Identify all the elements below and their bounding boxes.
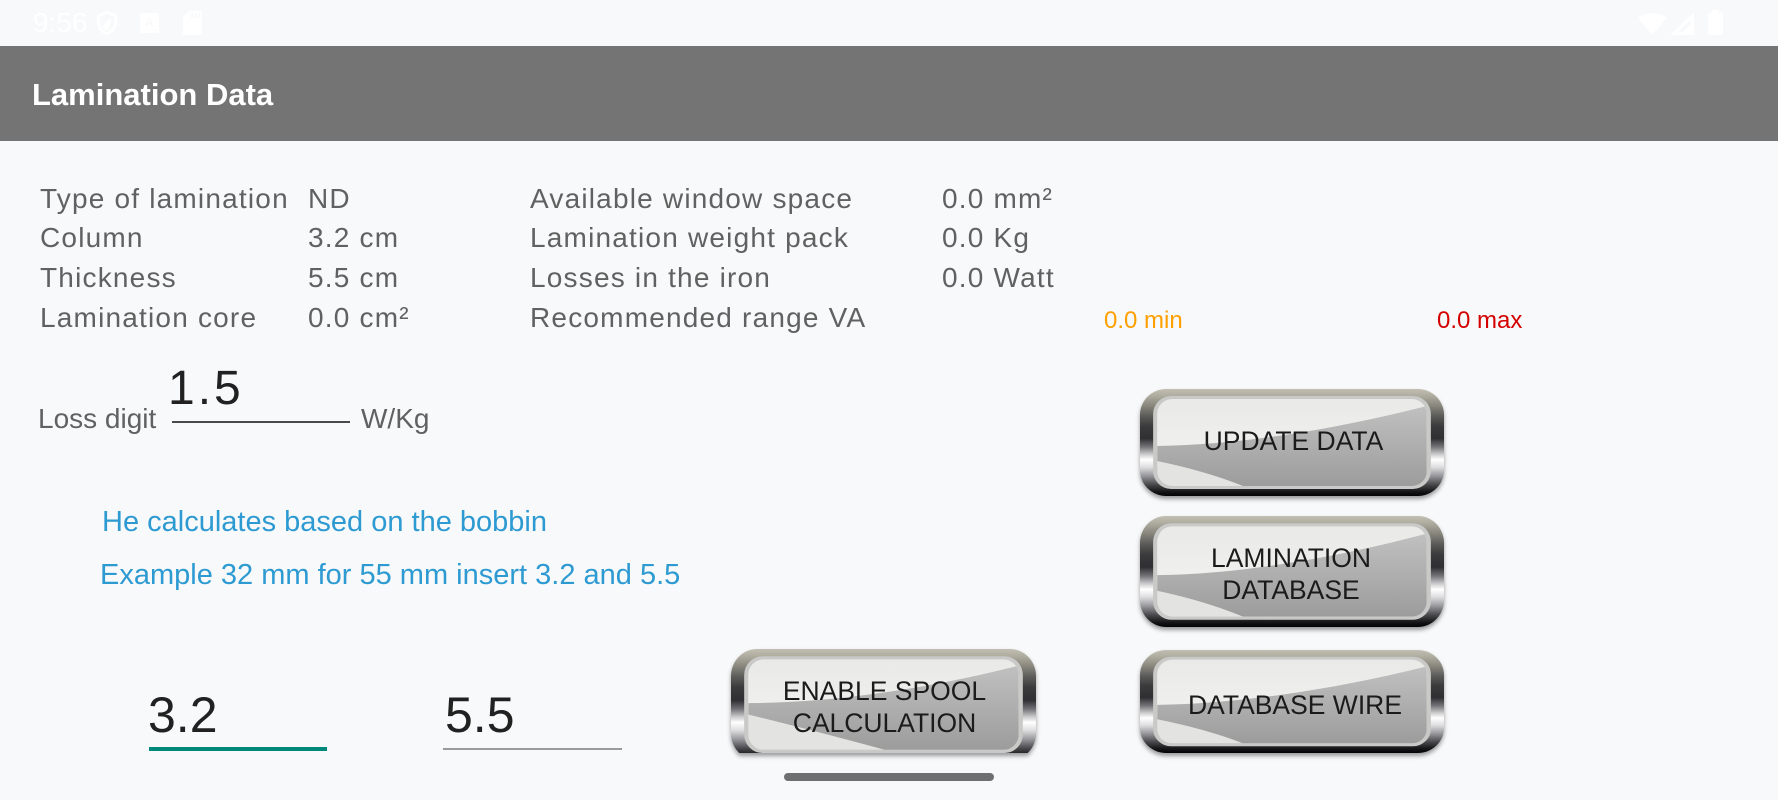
svg-text:A: A [145, 16, 154, 30]
